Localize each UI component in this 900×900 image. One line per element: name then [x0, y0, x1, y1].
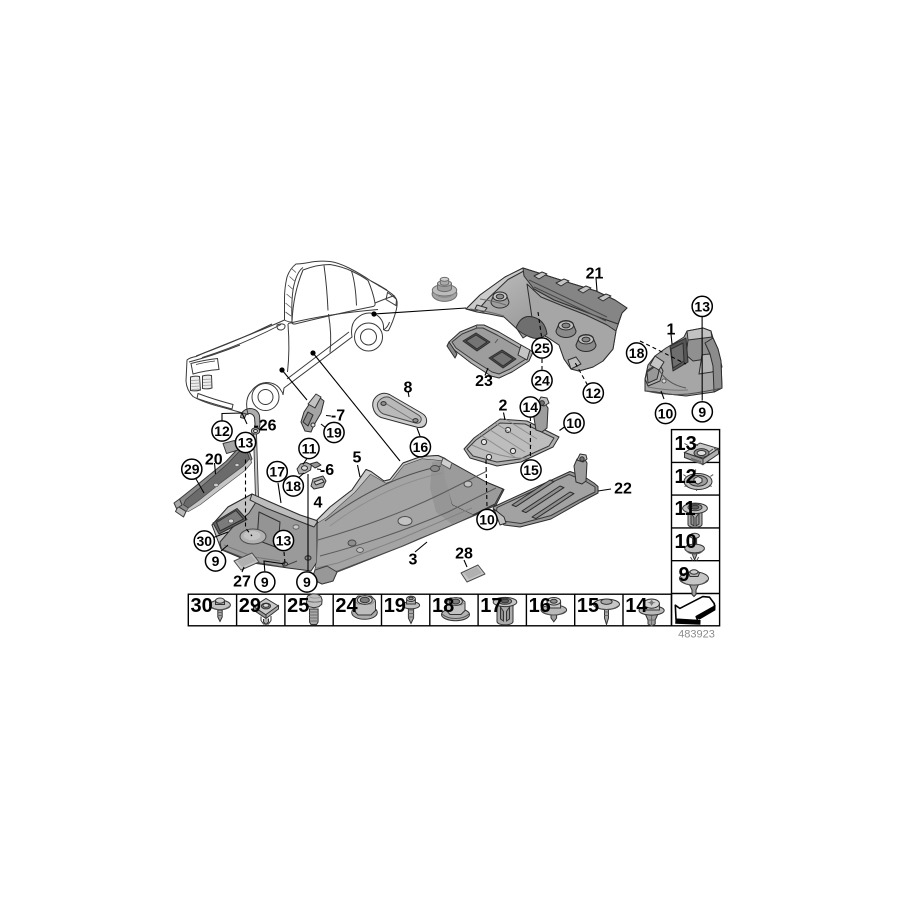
svg-text:17: 17: [480, 595, 502, 617]
svg-text:11: 11: [302, 441, 317, 457]
svg-text:3: 3: [409, 552, 418, 569]
svg-text:10: 10: [566, 415, 582, 431]
svg-text:4: 4: [314, 495, 323, 512]
svg-text:13: 13: [238, 435, 254, 451]
svg-text:-26: -26: [253, 418, 276, 435]
svg-text:20: 20: [205, 451, 223, 468]
svg-text:5: 5: [353, 450, 362, 467]
svg-text:19: 19: [326, 425, 342, 441]
svg-text:9: 9: [679, 564, 690, 586]
svg-text:30: 30: [197, 533, 213, 549]
svg-text:28: 28: [455, 546, 473, 563]
svg-text:8: 8: [404, 380, 413, 397]
svg-text:9: 9: [303, 574, 311, 590]
svg-text:15: 15: [523, 462, 539, 478]
svg-text:1: 1: [667, 322, 676, 339]
svg-text:15: 15: [577, 595, 599, 617]
svg-text:17: 17: [269, 464, 285, 480]
svg-text:24: 24: [335, 595, 358, 617]
svg-text:22: 22: [614, 481, 632, 498]
svg-text:12: 12: [675, 466, 697, 488]
svg-text:18: 18: [629, 345, 645, 361]
svg-text:12: 12: [586, 385, 602, 401]
svg-text:25: 25: [534, 340, 550, 356]
svg-text:23: 23: [475, 373, 493, 390]
svg-text:9: 9: [261, 574, 269, 590]
svg-text:9: 9: [212, 553, 220, 569]
svg-text:19: 19: [384, 595, 406, 617]
svg-text:10: 10: [658, 406, 674, 422]
svg-text:12: 12: [214, 423, 230, 439]
svg-text:13: 13: [694, 298, 710, 314]
svg-text:25: 25: [287, 595, 309, 617]
svg-text:18: 18: [286, 478, 302, 494]
svg-text:27: 27: [233, 573, 251, 590]
svg-text:10: 10: [479, 512, 495, 528]
svg-text:14: 14: [523, 399, 539, 415]
svg-text:-6: -6: [320, 462, 334, 479]
svg-text:11: 11: [675, 498, 696, 520]
svg-text:16: 16: [413, 439, 429, 455]
svg-text:13: 13: [675, 433, 697, 455]
svg-text:24: 24: [534, 373, 550, 389]
svg-text:18: 18: [432, 595, 454, 617]
svg-text:9: 9: [698, 404, 706, 420]
svg-text:10: 10: [675, 531, 697, 553]
svg-text:16: 16: [529, 595, 551, 617]
svg-text:30: 30: [191, 595, 213, 617]
svg-text:29: 29: [184, 461, 200, 477]
svg-text:29: 29: [239, 595, 261, 617]
svg-text:13: 13: [276, 533, 292, 549]
svg-text:14: 14: [625, 595, 648, 617]
svg-text:483923: 483923: [678, 629, 715, 641]
svg-text:2: 2: [499, 398, 508, 415]
svg-text:21: 21: [586, 266, 604, 283]
